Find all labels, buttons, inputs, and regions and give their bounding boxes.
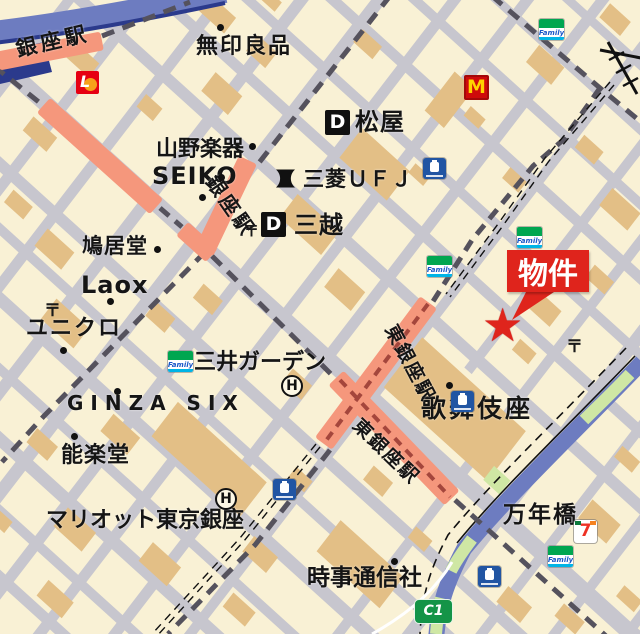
lawson-wordmark: [426, 175, 443, 177]
lawson-milkcan: [485, 570, 494, 580]
familymart-green-band: [168, 351, 193, 360]
label-muji: 無印良品: [196, 36, 292, 58]
department-letter: D: [261, 212, 286, 237]
familymart-wordmark: Family: [548, 555, 573, 564]
label-yamano-gakki: 山野楽器: [156, 139, 244, 161]
poi-dot: [446, 382, 453, 389]
lawson-wordmark: [454, 408, 471, 410]
label-mannenbashi: 万年橋: [503, 504, 578, 527]
hotel-letter: H: [217, 490, 235, 508]
label-matsuya: 松屋: [355, 110, 405, 134]
label-mitsui-garden: 三井ガーデン: [194, 352, 326, 374]
post-office-icon: 〒: [566, 332, 583, 357]
familymart-wordmark: Family: [539, 28, 564, 37]
poi-dot: [217, 24, 224, 31]
expressway-c1-shield: C1: [414, 599, 453, 624]
poi-dot: [114, 388, 121, 395]
poi-dot: [391, 558, 398, 565]
seven-orange-accent: [590, 521, 596, 525]
golden-arches: M: [466, 77, 487, 98]
lawson-wordmark: [276, 496, 293, 498]
familymart-cyan-band: [168, 369, 193, 372]
bank-icon: [274, 168, 297, 189]
lawson-icon: [478, 566, 501, 587]
lawson-icon: [423, 158, 446, 179]
department-store-icon: D: [325, 110, 350, 135]
familymart-green-band: [539, 19, 564, 28]
label-kyukyodo: 鳩居堂: [82, 236, 148, 257]
familymart-green-band: [517, 227, 542, 236]
label-marriott-tokyo-ginza: マリオット東京銀座: [46, 510, 244, 532]
post-office-icon: 〒: [44, 296, 61, 321]
familymart-icon: Family: [517, 227, 542, 248]
lawson-icon: [451, 391, 474, 412]
lawson-milkcan: [280, 483, 289, 493]
post-office-icon: 〒: [244, 220, 259, 241]
familymart-wordmark: Family: [517, 236, 542, 245]
label-mitsubishi-ufj: 三菱ＵＦＪ: [303, 169, 413, 190]
label-ginza-six: GINZA SIX: [67, 393, 245, 413]
label-mitsukoshi: 三越: [294, 213, 344, 237]
familymart-green-band: [548, 546, 573, 555]
seven-eleven-icon: 7: [574, 520, 597, 543]
lawson-icon: [273, 479, 296, 500]
hotel-icon: H: [215, 488, 237, 510]
familymart-cyan-band: [548, 564, 573, 567]
lotteria-letter: L: [80, 72, 90, 91]
familymart-cyan-band: [517, 245, 542, 248]
lawson-milkcan: [430, 162, 439, 172]
hotel-letter: H: [283, 377, 301, 395]
familymart-icon: Family: [539, 19, 564, 40]
familymart-cyan-band: [427, 274, 452, 277]
poi-dot: [154, 246, 161, 253]
familymart-cyan-band: [539, 37, 564, 40]
mcdonalds-icon: M: [464, 75, 489, 100]
department-letter: D: [325, 110, 350, 135]
label-nohgakudo: 能楽堂: [61, 445, 130, 467]
poi-dot: [249, 143, 256, 150]
familymart-icon: Family: [168, 351, 193, 372]
poi-dot: [218, 174, 225, 181]
poi-dot: [71, 433, 78, 440]
familymart-wordmark: Family: [168, 360, 193, 369]
label-uniqlo: ユニクロ: [26, 318, 122, 340]
lotteria-icon: L: [76, 71, 99, 94]
seven-green-accent: [575, 521, 581, 525]
map-canvas[interactable]: 無印良品山野楽器SEIKO松屋三菱ＵＦＪ三越鳩居堂LaoxユニクロGINZA S…: [0, 0, 640, 634]
familymart-icon: Family: [427, 256, 452, 277]
c1-text: C1: [415, 600, 452, 622]
label-kabukiza: 歌舞伎座: [421, 396, 533, 421]
property-star-icon: ★: [482, 302, 523, 348]
label-laox: Laox: [81, 273, 148, 297]
familymart-green-band: [427, 256, 452, 265]
poi-dot: [107, 298, 114, 305]
department-store-icon: D: [261, 212, 286, 237]
label-jiji-press: 時事通信社: [307, 567, 422, 590]
property-label: 物件: [518, 249, 578, 293]
poi-dot: [60, 347, 67, 354]
lawson-milkcan: [458, 395, 467, 405]
hotel-icon: H: [281, 375, 303, 397]
familymart-icon: Family: [548, 546, 573, 567]
property-callout: 物件: [507, 250, 589, 292]
familymart-wordmark: Family: [427, 265, 452, 274]
poi-dot: [199, 194, 206, 201]
lawson-wordmark: [481, 583, 498, 585]
